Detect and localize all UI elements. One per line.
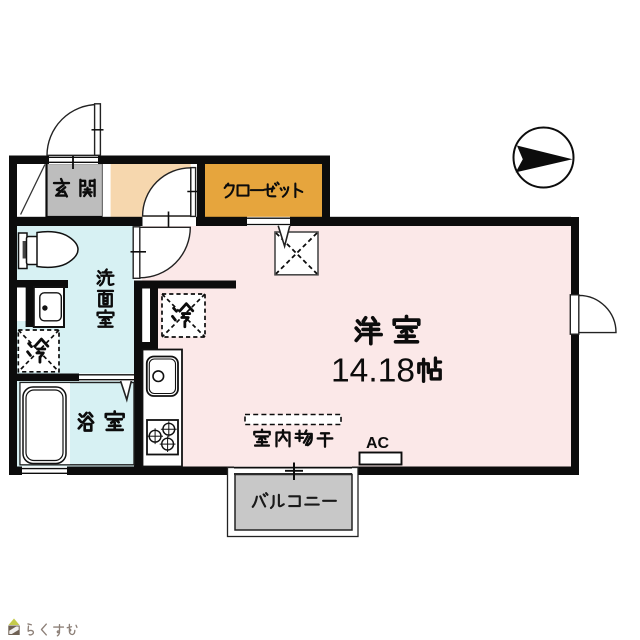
svg-text:14.18: 14.18 [331,353,415,390]
svg-text:AC: AC [366,435,390,452]
